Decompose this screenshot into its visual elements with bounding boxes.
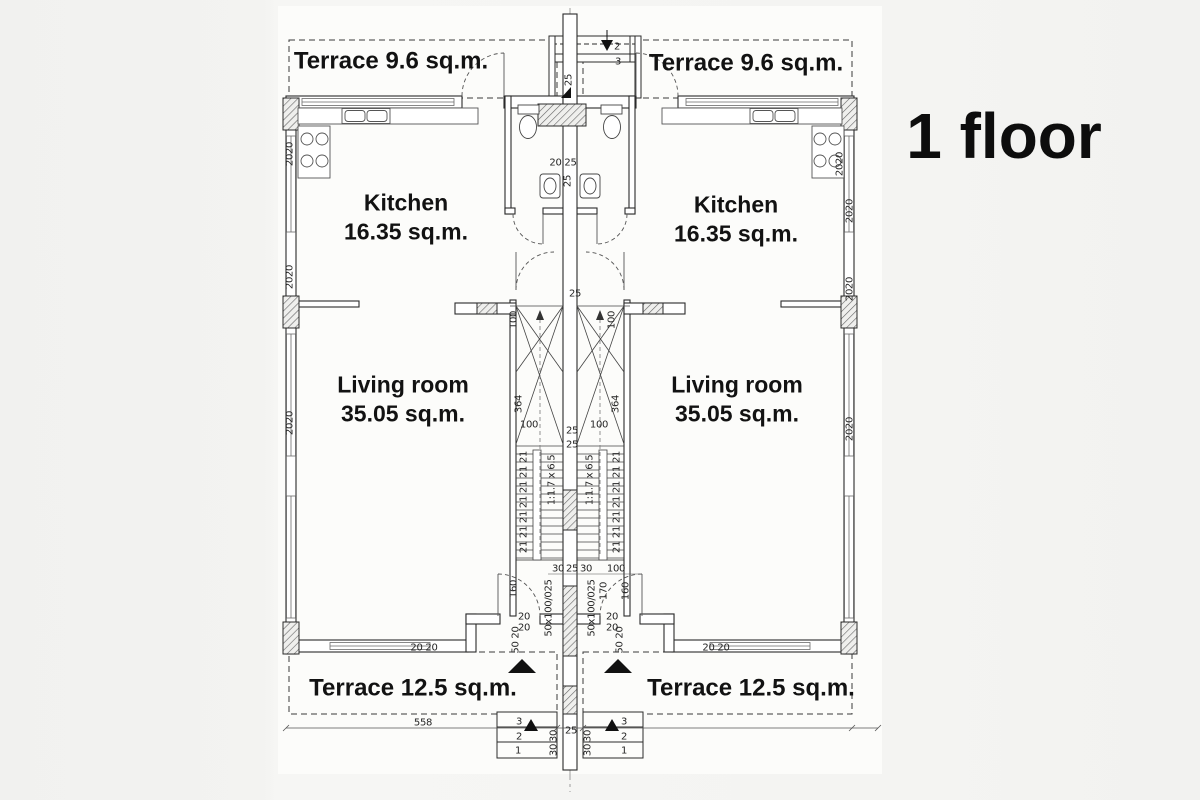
toilet-tank-right <box>601 105 622 114</box>
stove-right <box>812 126 844 178</box>
page-title: 1 floor <box>906 99 1102 173</box>
toilet-bowl-right <box>604 116 621 139</box>
floor-plan-page: Terrace 9.6 sq.m.Terrace 9.6 sq.m.Kitche… <box>0 0 1200 800</box>
stove-left <box>298 126 330 178</box>
toilet-tank-left <box>518 105 539 114</box>
toilet-bowl-left <box>520 116 537 139</box>
kitchen-sink-right <box>750 109 798 124</box>
kitchen-sink-left <box>342 109 390 124</box>
